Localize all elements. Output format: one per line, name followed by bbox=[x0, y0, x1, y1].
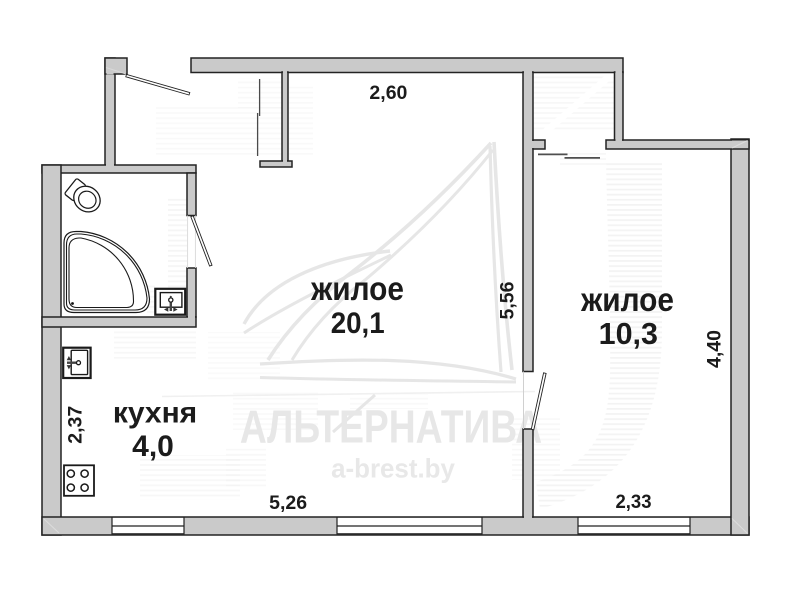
svg-text:5,56: 5,56 bbox=[497, 281, 519, 319]
svg-text:4,40: 4,40 bbox=[704, 330, 726, 368]
svg-text:2,37: 2,37 bbox=[65, 406, 87, 444]
svg-text:2,33: 2,33 bbox=[615, 492, 651, 514]
svg-text:10,3: 10,3 bbox=[599, 317, 658, 351]
svg-text:a-brest.by: a-brest.by bbox=[331, 453, 455, 484]
svg-text:4,0: 4,0 bbox=[132, 430, 174, 463]
svg-text:5,26: 5,26 bbox=[269, 492, 307, 514]
svg-text:20,1: 20,1 bbox=[331, 307, 385, 340]
svg-text:АЛЬТЕРНАТИВА: АЛЬТЕРНАТИВА bbox=[240, 401, 542, 453]
svg-text:2,60: 2,60 bbox=[369, 82, 407, 104]
svg-text:жилое: жилое bbox=[310, 269, 404, 307]
svg-text:жилое: жилое bbox=[580, 281, 674, 319]
svg-text:кухня: кухня bbox=[113, 396, 197, 429]
